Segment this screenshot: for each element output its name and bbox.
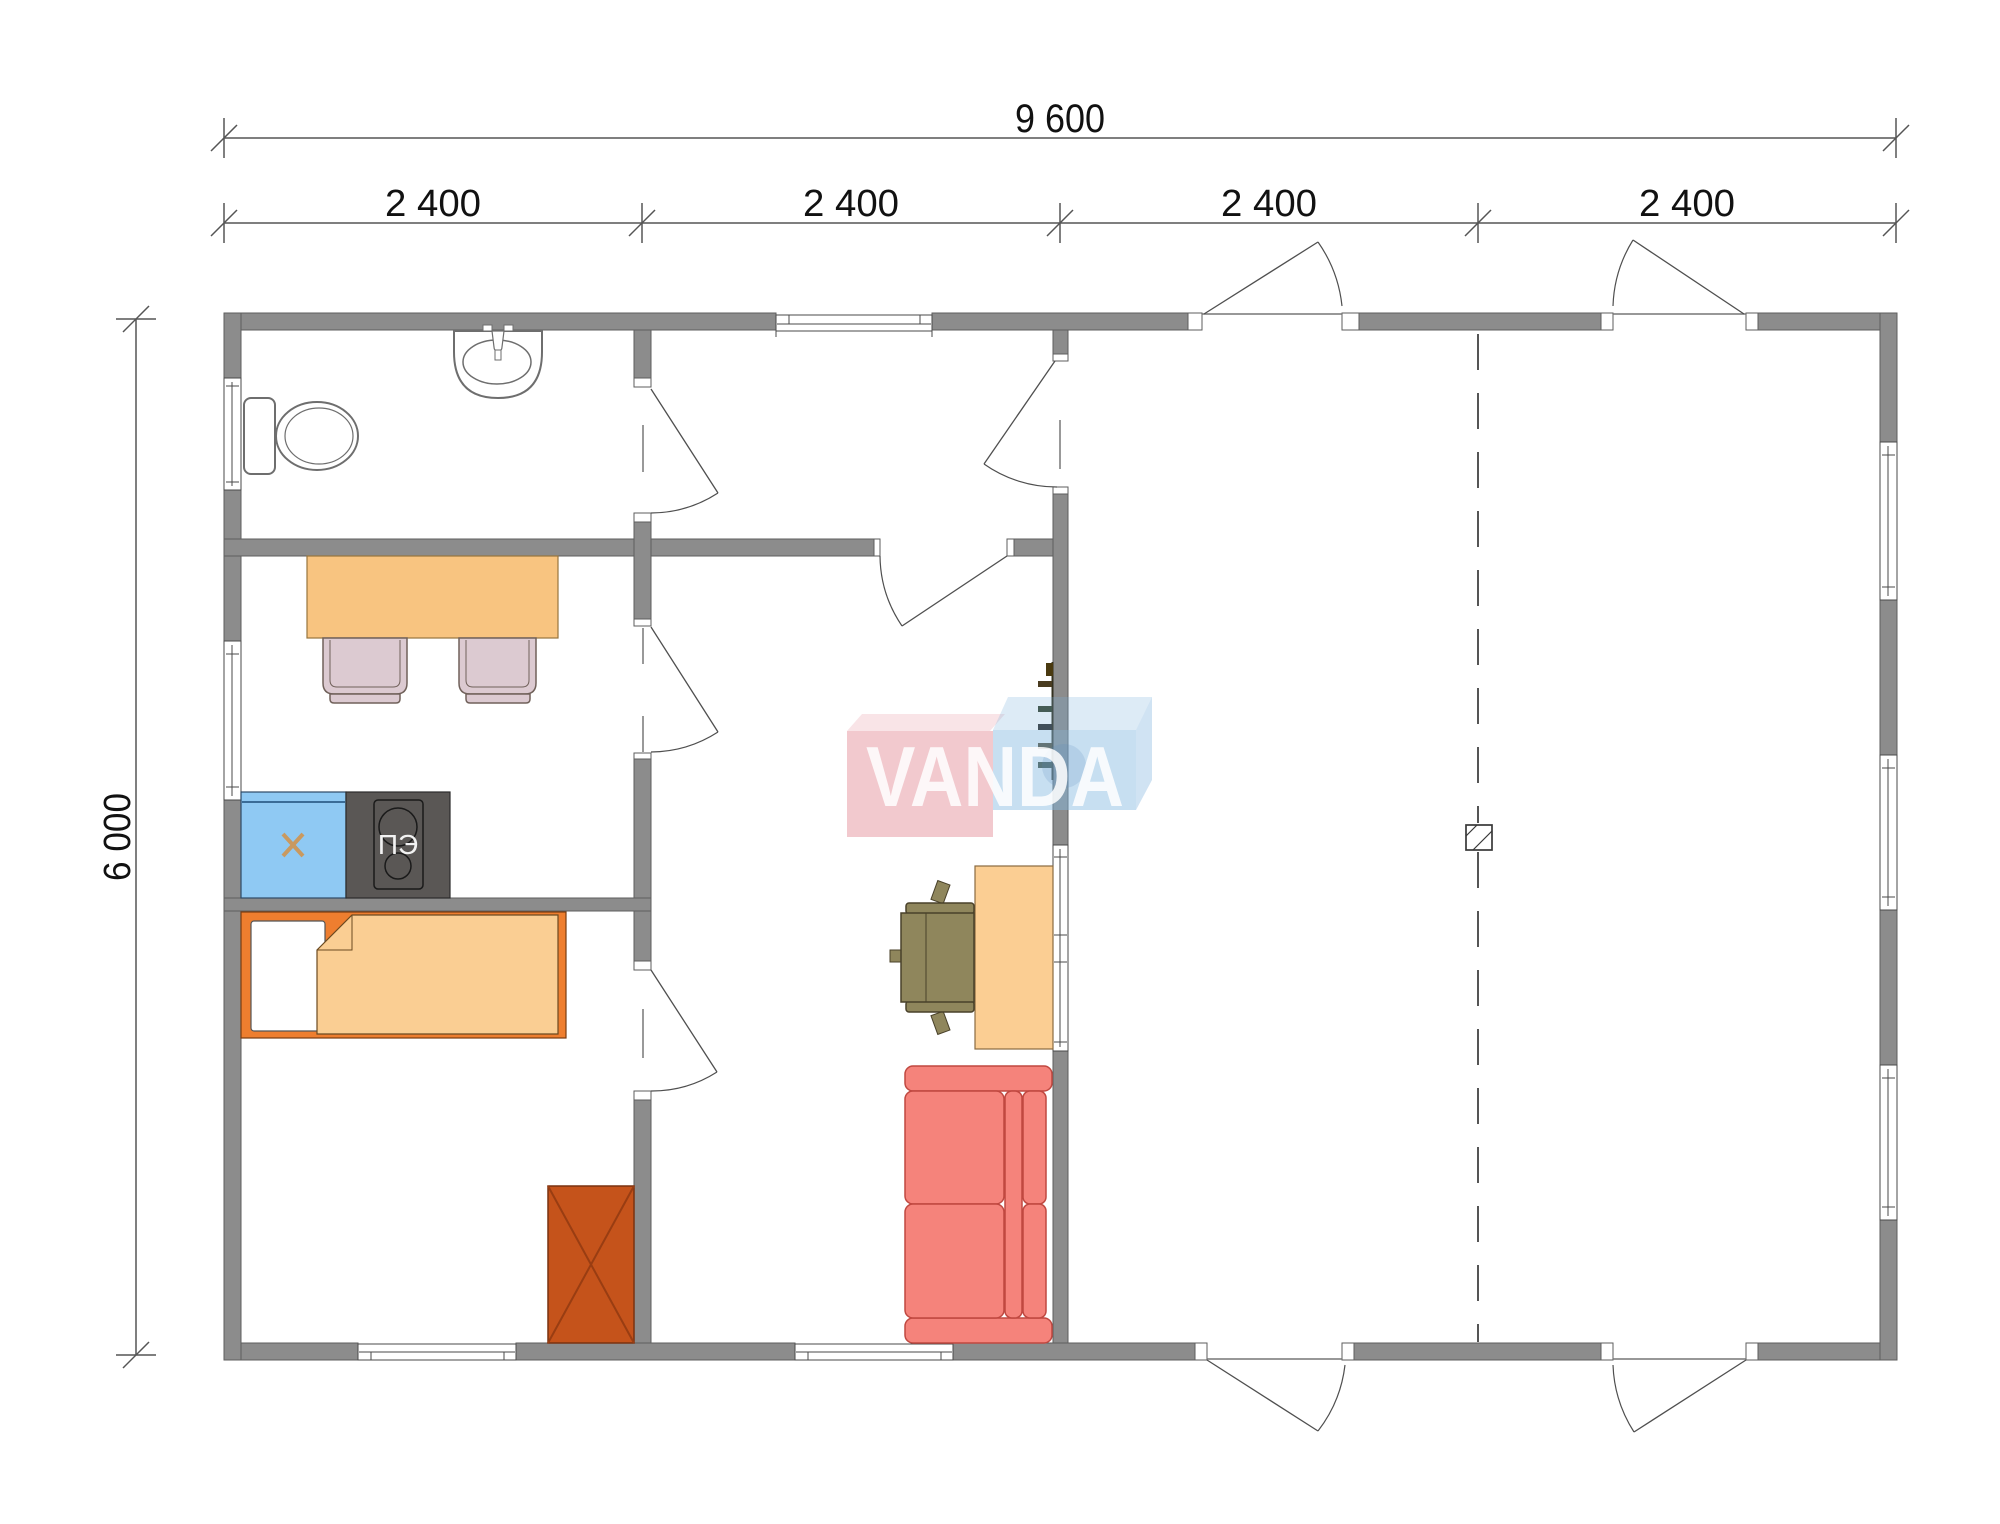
svg-text:2 400: 2 400 bbox=[1639, 183, 1735, 225]
svg-text:2 400: 2 400 bbox=[803, 183, 899, 225]
svg-text:ПЭ: ПЭ bbox=[378, 829, 418, 860]
svg-text:VANDA: VANDA bbox=[866, 730, 1124, 825]
svg-text:2 400: 2 400 bbox=[1221, 183, 1317, 225]
svg-text:2 400: 2 400 bbox=[385, 183, 481, 225]
svg-text:6 000: 6 000 bbox=[97, 793, 139, 881]
svg-text:9 600: 9 600 bbox=[1015, 97, 1105, 141]
